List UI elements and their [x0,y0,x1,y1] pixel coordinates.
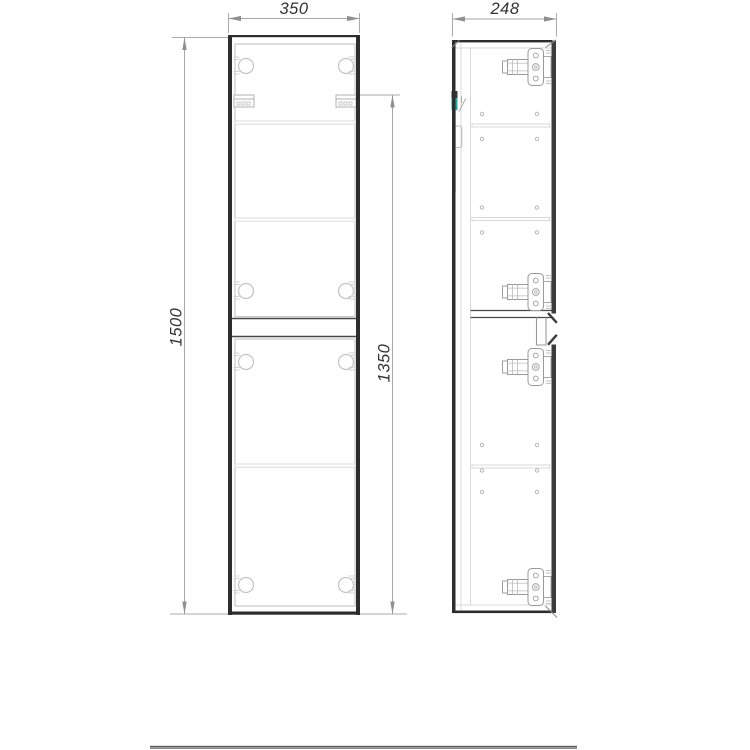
shelf-line [472,218,550,221]
dimension-depth: 248 [453,0,557,37]
upper-door [235,44,355,317]
hinge-cup-circle [239,578,254,593]
arrow-right-icon [544,16,557,21]
front-view [228,35,360,615]
concealed-hinge-icon [503,569,552,606]
shelf-line [235,218,355,221]
right-side-panel [356,35,360,615]
technical-drawing: 350 248 1500 1350 [0,0,750,750]
top-panel [228,35,360,37]
shelf-line [235,121,355,124]
door-gap-bevel [548,335,557,345]
hinge-cup-circle [239,59,254,74]
arrow-down-icon [182,602,186,615]
shelf-line [235,464,355,467]
hinge-cup-circle [239,284,254,299]
dim-depth-label: 248 [489,0,519,18]
door-front-edge-lower [552,345,557,614]
back-panel [452,40,456,613]
concealed-hinge-icon [503,49,552,86]
dimension-width: 350 [229,0,360,33]
arrow-up-icon [390,95,394,108]
side-view [452,40,558,618]
shelf-line [472,124,550,127]
wall-mount-rail-icon [234,95,254,107]
wall-mount-rail-icon [336,95,356,107]
shelf-line [472,465,550,468]
dim-height-label: 1500 [168,307,186,346]
left-side-panel [228,35,232,615]
arrow-right-icon [347,16,360,21]
concealed-hinge-icon [503,349,552,386]
lower-door [235,339,355,606]
arrow-left-icon [229,16,242,21]
hanger-hook-line [459,98,466,111]
arrow-up-icon [182,38,186,51]
door-front-edge-upper [552,41,557,314]
bottom-panel [452,611,552,614]
door-gap-edge [537,318,547,346]
drawing-sheet: 350 248 1500 1350 [0,0,750,750]
hinge-cup-circle [239,355,254,370]
dimensions: 350 248 1500 1350 [168,0,557,614]
top-panel [452,40,552,42]
footer-rule [150,746,577,749]
arrow-left-icon [453,16,466,21]
bottom-panel [228,612,360,615]
arrow-down-icon [390,602,394,615]
concealed-hinge-icon [503,274,552,311]
dim-width-label: 350 [279,0,308,18]
dim-mounting-height-label: 1350 [376,343,394,382]
